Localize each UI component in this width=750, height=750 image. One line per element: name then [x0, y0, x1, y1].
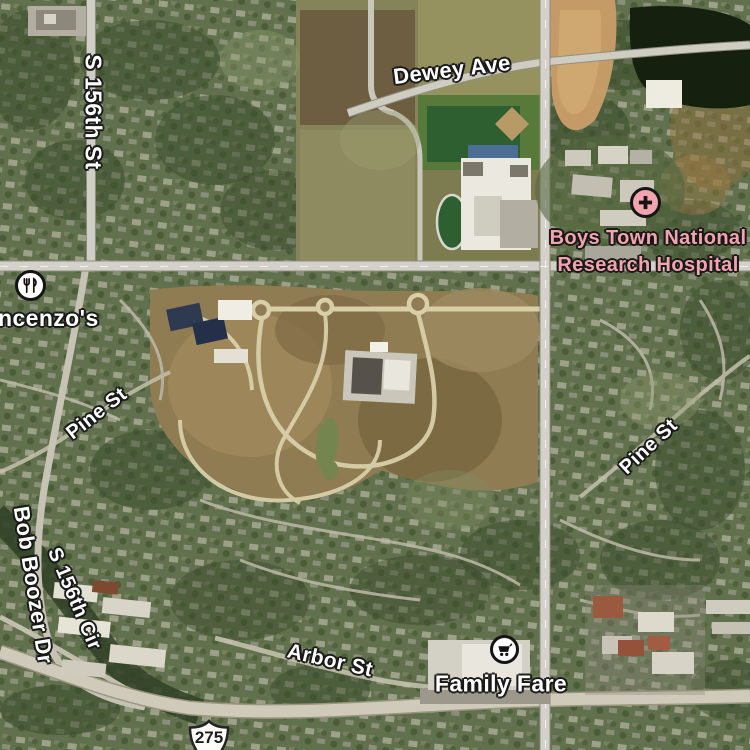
boys-town-line2[interactable]: Research Hospital	[550, 252, 747, 279]
grocery-marker[interactable]	[490, 635, 519, 664]
fork-knife-icon	[22, 277, 39, 294]
hospital-cross-icon	[638, 195, 653, 210]
poi-label-family-fare[interactable]: Family Fare	[435, 671, 567, 698]
route-shield-number: 275	[185, 728, 233, 748]
poi-label-vincenzos[interactable]: ncenzo's	[0, 305, 99, 332]
poi-label-boys-town[interactable]: Boys Town National Research Hospital	[550, 225, 747, 279]
shopping-cart-icon	[496, 641, 513, 658]
satellite-basemap[interactable]	[0, 0, 750, 750]
construction-site	[150, 285, 540, 503]
boys-town-line1[interactable]: Boys Town National	[550, 225, 747, 252]
us-route-shield-icon: 275	[185, 719, 233, 750]
restaurant-marker[interactable]	[15, 270, 46, 301]
hospital-marker[interactable]	[630, 187, 661, 218]
map-viewport[interactable]: Dewey Ave S 156th St Pine St Pine St Bob…	[0, 0, 750, 750]
school-northwest	[28, 6, 86, 36]
street-label-s-156th-st: S 156th St	[80, 54, 107, 169]
